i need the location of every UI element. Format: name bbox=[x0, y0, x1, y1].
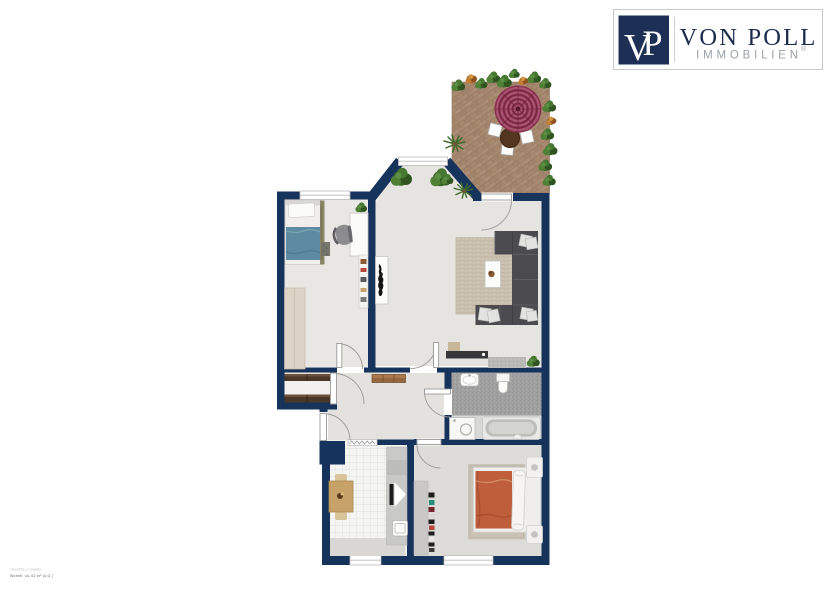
svg-text:Wohnfl. ca. 62 m² (o.G.): Wohnfl. ca. 62 m² (o.G.) bbox=[10, 574, 53, 578]
svg-text:Grundriss o. Gewähr: Grundriss o. Gewähr bbox=[11, 568, 42, 572]
svg-text:®: ® bbox=[801, 45, 807, 53]
svg-text:IMMOBILIEN: IMMOBILIEN bbox=[696, 50, 802, 62]
svg-text:VON POLL: VON POLL bbox=[679, 24, 817, 51]
svg-text:P: P bbox=[643, 23, 663, 63]
